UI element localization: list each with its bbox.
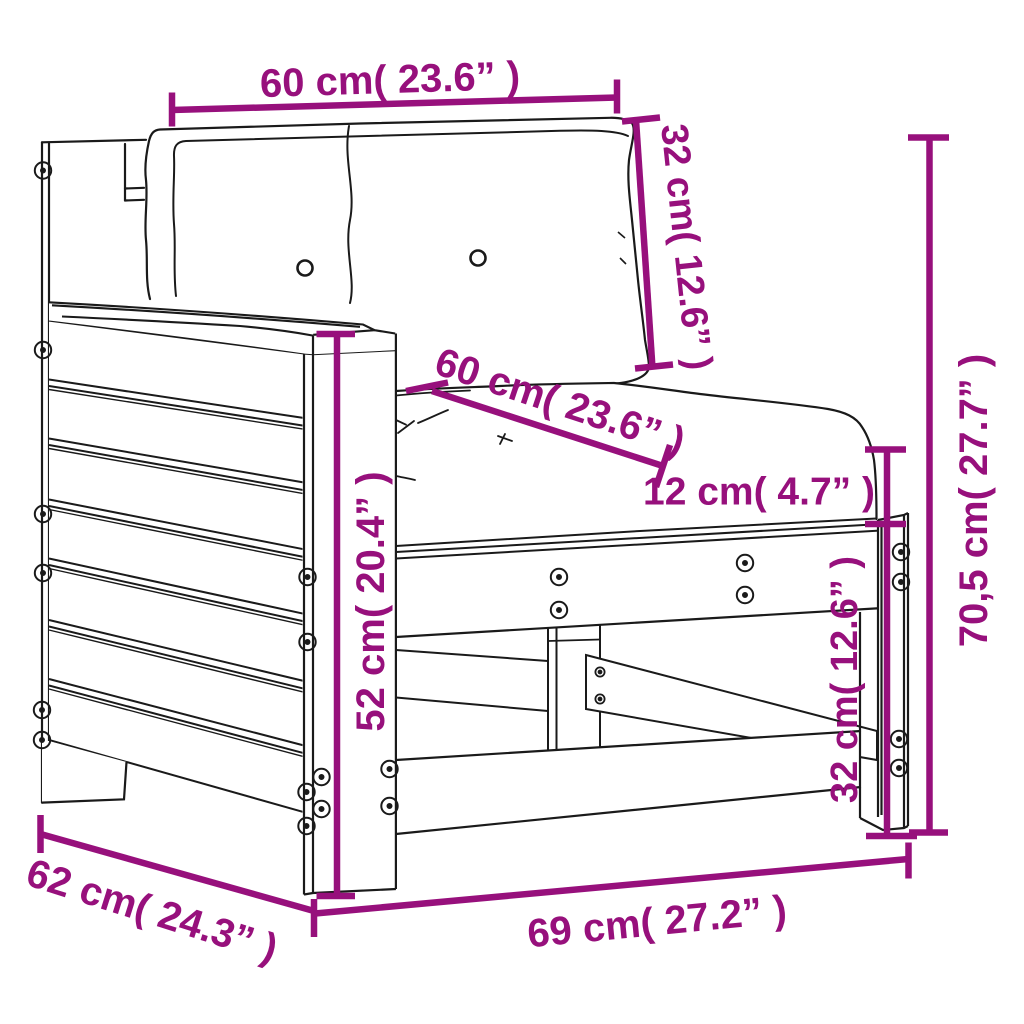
svg-text:12 cm( 4.7” ): 12 cm( 4.7” ) xyxy=(643,471,875,514)
svg-text:52 cm( 20.4” ): 52 cm( 20.4” ) xyxy=(349,471,393,731)
svg-text:70,5 cm( 27.7” ): 70,5 cm( 27.7” ) xyxy=(952,354,996,648)
svg-text:32 cm( 12.6” ): 32 cm( 12.6” ) xyxy=(824,556,866,803)
svg-text:60 cm( 23.6” ): 60 cm( 23.6” ) xyxy=(259,54,520,106)
